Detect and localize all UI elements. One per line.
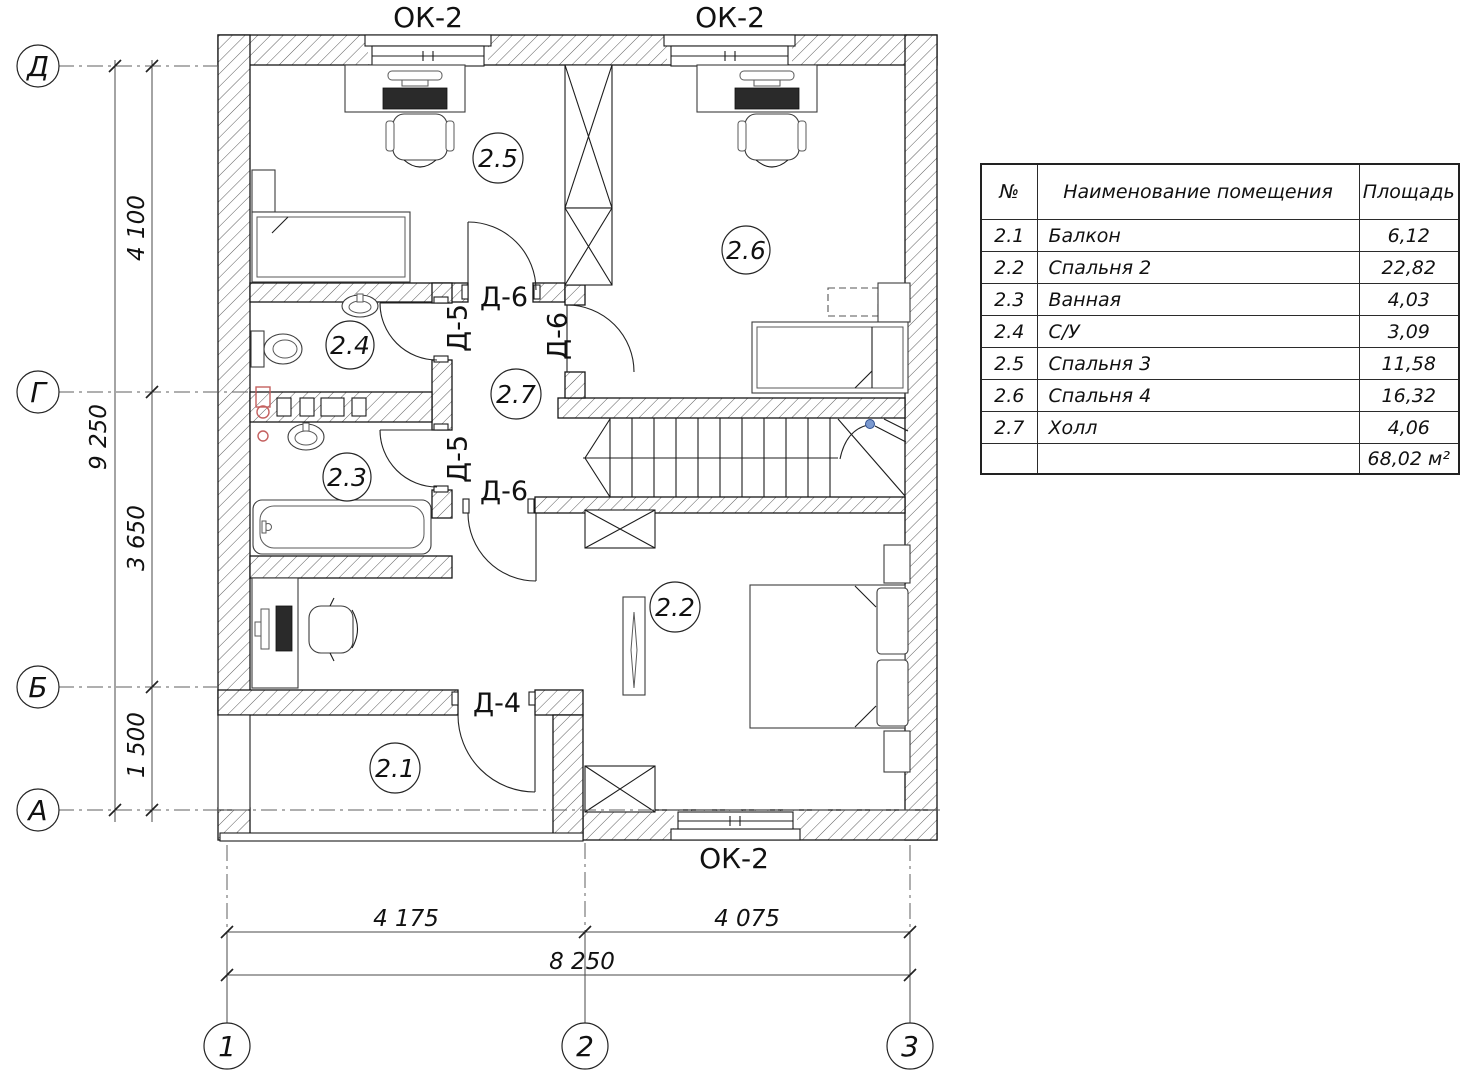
axis-bubbles: Д Г Б А 1 2 3: [17, 45, 933, 1069]
door-label-d6-bottom: Д-6: [480, 476, 528, 507]
cell-area: 16,32: [1359, 380, 1459, 412]
table-row: 2.1Балкон6,12: [981, 220, 1459, 252]
table-row: 2.2Спальня 222,82: [981, 252, 1459, 284]
table-row: 2.6Спальня 416,32: [981, 380, 1459, 412]
cell-num: 2.1: [981, 220, 1037, 252]
stair-hinge-dot: [866, 420, 875, 429]
cell-num: 2.3: [981, 284, 1037, 316]
room-schedule-table: № Наименование помещения Площадь 2.1Балк…: [980, 163, 1458, 475]
door-d5-bottom-icon: [380, 424, 448, 492]
table-row: 2.3Ванная4,03: [981, 284, 1459, 316]
axis-col-3: 3: [901, 1030, 919, 1063]
dim-span-mid: 3 650: [124, 505, 150, 571]
door-label-d5-top: Д-5: [443, 304, 474, 352]
window-label-bottom: ОК-2: [699, 842, 769, 875]
dim-span-top: 4 100: [124, 195, 150, 261]
window-top-left-icon: [365, 35, 491, 66]
floor-plan-drawing: Д Г Б А 1 2 3 9 250 4 100 3 650 1 500 4 …: [0, 0, 1467, 1080]
table-row: 2.7Холл4,06: [981, 412, 1459, 444]
header-area: Площадь: [1359, 164, 1459, 220]
cell-area: 22,82: [1359, 252, 1459, 284]
cell-area: 11,58: [1359, 348, 1459, 380]
axis-row-b: Б: [28, 671, 47, 704]
cell-num: 2.2: [981, 252, 1037, 284]
double-bed-icon: [750, 545, 910, 772]
dim-bottom-left: 4 175: [373, 906, 439, 932]
mirror-22-icon: [623, 597, 645, 695]
desk-computer-22-icon: [252, 578, 358, 688]
room-number-bedroom2: 2.2: [655, 593, 695, 622]
dim-span-bottom: 1 500: [124, 712, 150, 778]
axis-row-d: Д: [25, 50, 49, 83]
room-number-balcony: 2.1: [375, 754, 415, 783]
axis-col-1: 1: [218, 1030, 236, 1063]
door-d6-bottom-icon: [463, 499, 536, 581]
room-number-hall: 2.7: [496, 380, 536, 409]
door-label-d5-bottom: Д-5: [443, 435, 474, 483]
cell-name: С/У: [1037, 316, 1359, 348]
table-row: 2.5Спальня 311,58: [981, 348, 1459, 380]
header-room-name: Наименование помещения: [1037, 164, 1359, 220]
door-label-d4: Д-4: [473, 688, 521, 719]
bathtub-icon: [253, 500, 431, 554]
cell-num: 2.6: [981, 380, 1037, 412]
cell-name: Спальня 4: [1037, 380, 1359, 412]
cell-name: Спальня 2: [1037, 252, 1359, 284]
axis-lines: [58, 66, 940, 1023]
dim-bottom-total: 8 250: [549, 949, 615, 975]
door-d5-top-icon: [380, 297, 448, 362]
dim-left-total: 9 250: [86, 404, 112, 470]
table-header-row: № Наименование помещения Площадь: [981, 164, 1459, 220]
desk-computer-25-icon: [345, 65, 465, 167]
door-d6-right-icon: [567, 305, 634, 372]
axis-col-2: 2: [576, 1030, 594, 1063]
cell-area: 4,03: [1359, 284, 1459, 316]
cell-area: 6,12: [1359, 220, 1459, 252]
washbasin-icon: [288, 423, 324, 450]
bed-26-icon: [752, 283, 910, 393]
dim-bottom-right: 4 075: [714, 906, 780, 932]
desk-computer-26-icon: [697, 65, 817, 167]
cell-name: Спальня 3: [1037, 348, 1359, 380]
toilet-icon: [251, 331, 302, 367]
room-number-bedroom3: 2.5: [478, 144, 518, 173]
total-empty-name: [1037, 444, 1359, 475]
axis-row-g: Г: [30, 376, 48, 409]
cell-area: 4,06: [1359, 412, 1459, 444]
room-number-wc: 2.4: [330, 331, 370, 360]
window-label-top-right: ОК-2: [695, 1, 765, 34]
total-area-value: 68,02 м²: [1359, 444, 1459, 475]
staircase: [583, 418, 908, 497]
header-number: №: [981, 164, 1037, 220]
cell-name: Балкон: [1037, 220, 1359, 252]
cell-num: 2.4: [981, 316, 1037, 348]
floor-plan-sheet: Д Г Б А 1 2 3 9 250 4 100 3 650 1 500 4 …: [0, 0, 1467, 1080]
bed-25-icon: [252, 170, 410, 282]
cell-area: 3,09: [1359, 316, 1459, 348]
window-label-top-left: ОК-2: [393, 1, 463, 34]
total-empty-num: [981, 444, 1037, 475]
room-number-bath: 2.3: [327, 463, 367, 492]
cell-num: 2.5: [981, 348, 1037, 380]
axis-row-a: А: [26, 794, 47, 827]
room-number-bedroom4: 2.6: [726, 236, 766, 265]
window-bottom-icon: [671, 811, 800, 840]
table-total-row: 68,02 м²: [981, 444, 1459, 475]
room-table-body: 2.1Балкон6,122.2Спальня 222,822.3Ванная4…: [981, 220, 1459, 444]
cell-num: 2.7: [981, 412, 1037, 444]
table-row: 2.4С/У3,09: [981, 316, 1459, 348]
door-label-d6-right: Д-6: [543, 312, 574, 360]
cell-name: Ванная: [1037, 284, 1359, 316]
cell-name: Холл: [1037, 412, 1359, 444]
vanity-shelf-icon: [277, 398, 366, 416]
door-label-d6-top: Д-6: [480, 282, 528, 313]
window-top-right-icon: [664, 35, 795, 66]
